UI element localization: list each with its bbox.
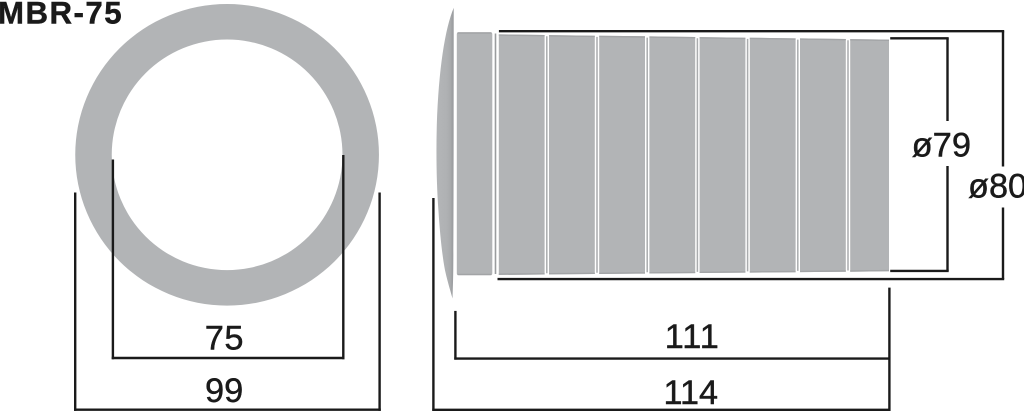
svg-text:111: 111 (665, 318, 720, 356)
svg-text:ø79: ø79 (912, 127, 971, 165)
svg-text:MBR-75: MBR-75 (0, 0, 123, 31)
svg-text:ø80: ø80 (968, 168, 1024, 206)
svg-text:99: 99 (205, 372, 243, 410)
svg-text:75: 75 (205, 319, 244, 357)
svg-text:114: 114 (664, 374, 719, 412)
